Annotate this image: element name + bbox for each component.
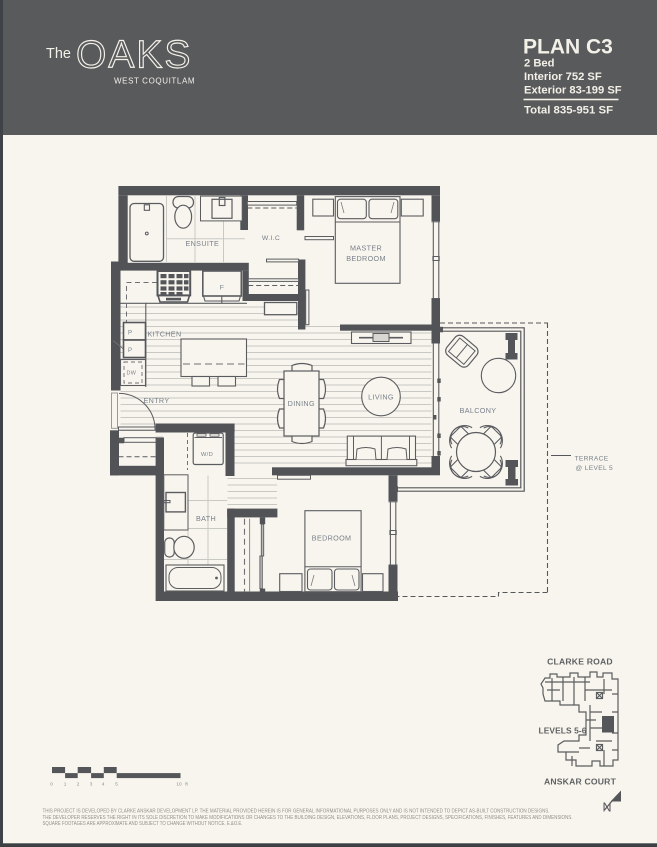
- svg-text:The: The: [46, 46, 71, 62]
- svg-text:0: 0: [50, 782, 53, 787]
- svg-text:ENTRY: ENTRY: [144, 396, 170, 405]
- svg-text:4: 4: [102, 782, 105, 787]
- svg-text:3: 3: [90, 782, 93, 787]
- svg-text:P: P: [128, 348, 132, 354]
- svg-text:2 Bed: 2 Bed: [524, 58, 555, 70]
- svg-text:2: 2: [77, 782, 80, 787]
- svg-text:LIVING: LIVING: [368, 392, 394, 401]
- svg-text:MASTER: MASTER: [350, 244, 382, 253]
- svg-text:THE DEVELOPER RESERVES THE RIG: THE DEVELOPER RESERVES THE RIGHT IN ITS …: [43, 815, 573, 821]
- svg-text:F: F: [220, 285, 225, 292]
- svg-text:DW: DW: [127, 371, 137, 377]
- svg-text:ANSKAR COURT: ANSKAR COURT: [544, 777, 617, 787]
- svg-text:BALCONY: BALCONY: [460, 406, 497, 415]
- svg-text:CLARKE ROAD: CLARKE ROAD: [547, 657, 613, 667]
- svg-text:Total 835-951 SF: Total 835-951 SF: [524, 105, 613, 117]
- svg-text:P: P: [128, 331, 132, 337]
- svg-text:SQUARE FOOTAGES ARE APPROXIMAT: SQUARE FOOTAGES ARE APPROXIMATE AND SUBJ…: [43, 821, 243, 827]
- svg-text:THIS PROJECT IS DEVELOPED BY C: THIS PROJECT IS DEVELOPED BY CLARKE ANSK…: [43, 809, 550, 815]
- svg-text:PLAN C3: PLAN C3: [523, 36, 613, 59]
- svg-text:W/D: W/D: [201, 452, 213, 458]
- svg-text:BEDROOM: BEDROOM: [312, 533, 352, 542]
- svg-text:KITCHEN: KITCHEN: [148, 329, 182, 338]
- svg-text:OAKS: OAKS: [76, 34, 192, 77]
- svg-text:BEDROOM: BEDROOM: [346, 254, 386, 263]
- svg-text:5: 5: [115, 782, 118, 787]
- svg-text:WEST COQUITLAM: WEST COQUITLAM: [114, 77, 195, 86]
- svg-text:W.I.C: W.I.C: [262, 235, 280, 242]
- svg-text:10: 10: [176, 782, 182, 787]
- svg-text:Exterior 83-199 SF: Exterior 83-199 SF: [524, 85, 622, 97]
- svg-text:1: 1: [64, 782, 67, 787]
- svg-text:N: N: [603, 801, 612, 815]
- svg-text:Interior 752 SF: Interior 752 SF: [524, 71, 602, 83]
- svg-text:BATH: BATH: [196, 514, 216, 523]
- svg-text:@ LEVEL 5: @ LEVEL 5: [576, 465, 613, 472]
- svg-text:LEVELS 5-6: LEVELS 5-6: [539, 726, 587, 736]
- svg-text:ENSUITE: ENSUITE: [185, 239, 219, 248]
- svg-text:TERRACE: TERRACE: [575, 456, 609, 463]
- svg-text:DINING: DINING: [288, 399, 315, 408]
